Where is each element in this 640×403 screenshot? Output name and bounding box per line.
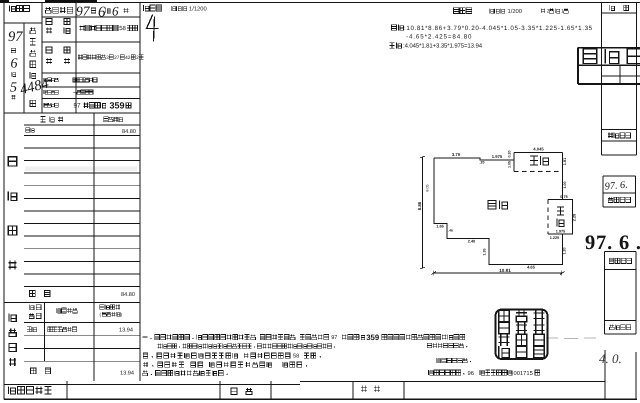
svg-text:84.80: 84.80 xyxy=(121,292,135,298)
svg-text:.46: .46 xyxy=(448,229,453,233)
svg-text::10.81*8.86+3.79*0.20-4.045*1.: :10.81*8.86+3.79*0.20-4.045*1.05-3.35*1.… xyxy=(404,25,593,32)
svg-text:5: 5 xyxy=(10,81,17,96)
svg-text:8.05: 8.05 xyxy=(426,184,430,191)
svg-text:13.94: 13.94 xyxy=(119,328,133,334)
svg-text:001715: 001715 xyxy=(514,370,533,377)
svg-text:97. 6 .: 97. 6 . xyxy=(585,232,640,254)
svg-text:27: 27 xyxy=(114,55,120,61)
svg-text:1.35: 1.35 xyxy=(483,249,487,256)
svg-text:1.81: 1.81 xyxy=(563,158,567,165)
svg-text:1.975: 1.975 xyxy=(556,230,566,234)
svg-text:2: 2 xyxy=(136,55,139,61)
svg-text:-4.65*2.425=84.80: -4.65*2.425=84.80 xyxy=(406,34,472,41)
svg-text:0.75: 0.75 xyxy=(560,195,567,199)
svg-text:8.86: 8.86 xyxy=(417,201,422,210)
svg-text:359: 359 xyxy=(366,333,380,342)
svg-text:.20: .20 xyxy=(480,161,485,165)
svg-text:1.65: 1.65 xyxy=(436,224,443,228)
svg-text:2.40: 2.40 xyxy=(468,239,475,243)
svg-text:97. 6.: 97. 6. xyxy=(604,180,628,193)
svg-text:58: 58 xyxy=(119,25,126,32)
svg-text:97: 97 xyxy=(331,335,337,341)
svg-text:359: 359 xyxy=(110,101,125,111)
svg-text:97: 97 xyxy=(8,29,23,45)
svg-text:3: 3 xyxy=(106,55,109,61)
svg-text:1.05: 1.05 xyxy=(508,161,512,168)
svg-text:0.20: 0.20 xyxy=(508,151,512,158)
svg-text:42: 42 xyxy=(125,55,131,61)
svg-text:4. 0.: 4. 0. xyxy=(599,351,622,366)
svg-text:58: 58 xyxy=(293,354,299,360)
svg-text:1/1200: 1/1200 xyxy=(189,6,207,13)
svg-text:10.81: 10.81 xyxy=(499,268,511,273)
svg-text:1.975: 1.975 xyxy=(492,154,503,159)
svg-text:96: 96 xyxy=(468,370,474,377)
svg-text::4.045*1.81+3.35*1.975=13.94: :4.045*1.81+3.35*1.975=13.94 xyxy=(403,43,483,50)
svg-text:1.00: 1.00 xyxy=(563,182,567,189)
svg-text:13.94: 13.94 xyxy=(120,371,134,377)
svg-text:97: 97 xyxy=(74,103,82,110)
svg-text:1.20: 1.20 xyxy=(563,248,567,255)
svg-text:3.79: 3.79 xyxy=(452,152,461,157)
svg-text:4.65: 4.65 xyxy=(527,264,536,269)
svg-text:6: 6 xyxy=(98,5,106,21)
svg-text:4.045: 4.045 xyxy=(533,146,544,151)
svg-text:6: 6 xyxy=(11,57,18,72)
svg-text:97: 97 xyxy=(76,4,91,19)
svg-text:2.28: 2.28 xyxy=(573,214,577,221)
svg-text:1/200: 1/200 xyxy=(508,8,523,15)
svg-text:6: 6 xyxy=(112,4,119,19)
svg-text:84.80: 84.80 xyxy=(122,129,136,135)
svg-text:1.225: 1.225 xyxy=(550,236,560,240)
